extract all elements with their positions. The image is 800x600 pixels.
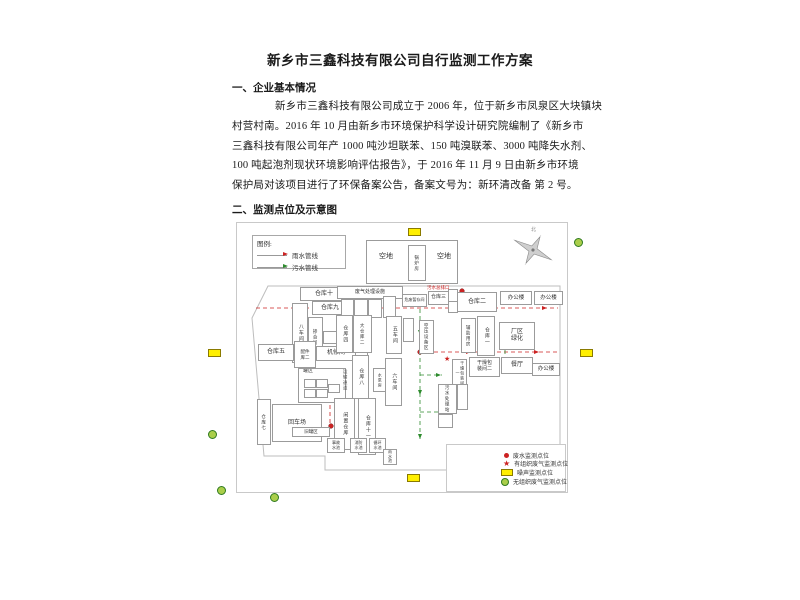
building-boiler-room: 锅炉房	[408, 245, 426, 281]
building-warehouse-7: 仓库七	[257, 399, 271, 445]
building-warehouse-2: 仓库二	[457, 292, 497, 312]
small-building	[457, 384, 468, 410]
empty-lot-right-label: 空地	[426, 252, 462, 260]
compass-north-label: 北	[531, 226, 536, 233]
rain-pool: 雨水池	[383, 449, 397, 465]
compass-icon	[510, 232, 556, 268]
yellow-rect-icon	[501, 469, 513, 476]
paragraph-line: 100 吨起泡剂现状环境影响评估报告》，于 2016 年 11 月 9 日由新乡…	[232, 157, 579, 172]
tank	[304, 389, 316, 398]
section1-heading: 一、企业基本情况	[232, 80, 316, 95]
unorganized-gas-marker	[270, 493, 279, 502]
green-circle-icon	[501, 478, 509, 486]
building-warehouse-8: 仓库八	[352, 355, 369, 399]
unorganized-gas-marker	[217, 486, 226, 495]
building-office-1: 办公楼	[500, 291, 532, 305]
sewage-outlet-label: 污水总排口	[427, 285, 450, 291]
noise-monitoring-marker	[208, 349, 221, 357]
building-warehouse-5: 仓库五	[258, 344, 294, 361]
building-sewage-station: 污水处理站	[438, 384, 457, 414]
unorganized-gas-marker	[574, 238, 583, 247]
unorganized-gas-marker	[208, 430, 217, 439]
legend-organized-gas: ★ 有组织废气监测点位	[503, 459, 568, 468]
building-office-2: 办公楼	[534, 291, 563, 305]
rainwater-line-label: 雨水管线	[292, 250, 318, 260]
building-drying-packing-2: 干燥包装间二	[469, 357, 500, 377]
building-hazwaste-storage: 危废暂存间	[402, 294, 427, 307]
sewage-line-label: 污水管线	[292, 262, 318, 272]
building-office-3: 办公楼	[532, 363, 560, 376]
tank-area-label: 罐区	[300, 369, 316, 375]
building-canteen: 餐厅	[501, 357, 533, 374]
empty-lot-left-label: 空地	[368, 252, 404, 260]
small-building	[438, 414, 453, 428]
small-building	[403, 318, 414, 342]
noise-monitoring-marker	[407, 474, 420, 482]
legend-label: 有组织废气监测点位	[514, 459, 568, 468]
legend-unorganized-gas: 无组织废气监测点位	[501, 477, 567, 486]
noise-monitoring-marker	[580, 349, 593, 357]
paragraph-line: 新乡市三鑫科技有限公司成立于 2006 年，位于新乡市凤泉区大块镇块	[232, 98, 602, 113]
legend-label: 无组织废气监测点位	[513, 477, 567, 486]
fire-pool: 消防水池	[350, 438, 367, 453]
red-star-icon: ★	[503, 460, 510, 468]
section2-heading: 二、监测点位及示意图	[232, 202, 337, 217]
accident-pool: 事故水池	[327, 438, 345, 453]
paragraph-line: 三鑫科技有限公司年产 1000 吨沙坦联苯、150 吨溴联苯、3000 吨降失水…	[232, 138, 592, 153]
building-auxiliary-room: 辅助用房	[461, 318, 476, 353]
noise-monitoring-marker	[408, 228, 421, 236]
pipeline-legend: 图例: 雨水管线 污水管线	[252, 235, 346, 269]
building-old-tank-area: 旧罐区	[292, 427, 330, 437]
rainwater-line-icon	[257, 255, 287, 256]
building-workshop-5: 五车间	[386, 316, 402, 354]
legend-noise: 噪声监测点位	[501, 468, 553, 477]
legend-label: 噪声监测点位	[517, 468, 553, 477]
tank	[316, 379, 328, 388]
sewage-line-icon	[257, 267, 287, 268]
tank	[328, 384, 340, 393]
building-air-compressor-area: 空压设备区	[419, 320, 434, 354]
building-warehouse-3: 仓库三	[428, 291, 449, 305]
small-building	[383, 296, 396, 318]
svg-text:★: ★	[444, 355, 450, 363]
building-warehouse-4: 仓库四	[336, 315, 353, 353]
document-page: 新乡市三鑫科技有限公司自行监测工作方案 一、企业基本情况 新乡市三鑫科技有限公司…	[0, 0, 800, 600]
building-workshop-6: 六车间	[385, 358, 402, 406]
pipeline-legend-title: 图例:	[257, 238, 341, 248]
building-warehouse-1: 仓库一	[477, 316, 495, 356]
building-big-warehouse-2: 大仓库二	[353, 315, 372, 353]
tank	[304, 379, 316, 388]
transport-corridor-label: 运输通道	[341, 356, 350, 404]
greening-area: 厂区绿化	[499, 322, 535, 350]
tank	[316, 389, 328, 398]
paragraph-line: 保护局对该项目进行了环保备案公告，备案文号为：新环清改备 第 2 号。	[232, 177, 578, 192]
red-dot-icon	[504, 453, 509, 458]
document-title: 新乡市三鑫科技有限公司自行监测工作方案	[0, 49, 800, 69]
paragraph-line: 村营村南。2016 年 10 月由新乡市环境保护科学设计研究院编制了《新乡市	[232, 118, 583, 133]
building-parts-warehouse-2: 配件库二	[294, 341, 316, 368]
